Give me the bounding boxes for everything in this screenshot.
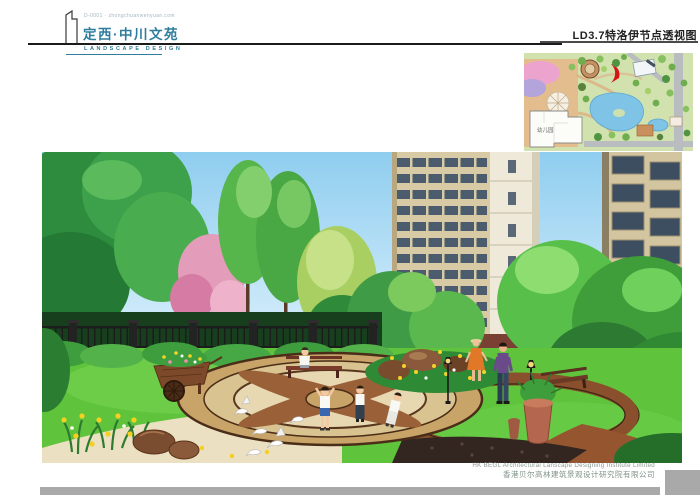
company-name-en: HK BEGL Architectural Lanscape Designing…: [472, 462, 655, 469]
company-name-cn: 香港贝尔高林建筑景观设计研究院有限公司: [503, 469, 655, 480]
child-middle: [356, 386, 365, 422]
footer-corner-block: [665, 470, 700, 495]
building-c: [602, 152, 682, 270]
logo-tagline: D-0001 · zhongchuanwenyuan.com: [84, 13, 175, 19]
kindergarten-label: 幼儿园: [537, 126, 554, 134]
discipline-underline: [66, 54, 162, 55]
logo-mark-icon: [64, 10, 82, 45]
discipline-label: LANDSCAPE DESIGN: [84, 46, 182, 52]
project-title: 定西·中川文苑: [83, 23, 179, 43]
footer-bar: [40, 487, 660, 495]
perspective-rendering: [42, 152, 682, 463]
header-rule: [28, 43, 562, 45]
sheet-title-underline: [540, 41, 698, 43]
inset-site-plan: 幼儿园: [524, 53, 693, 151]
